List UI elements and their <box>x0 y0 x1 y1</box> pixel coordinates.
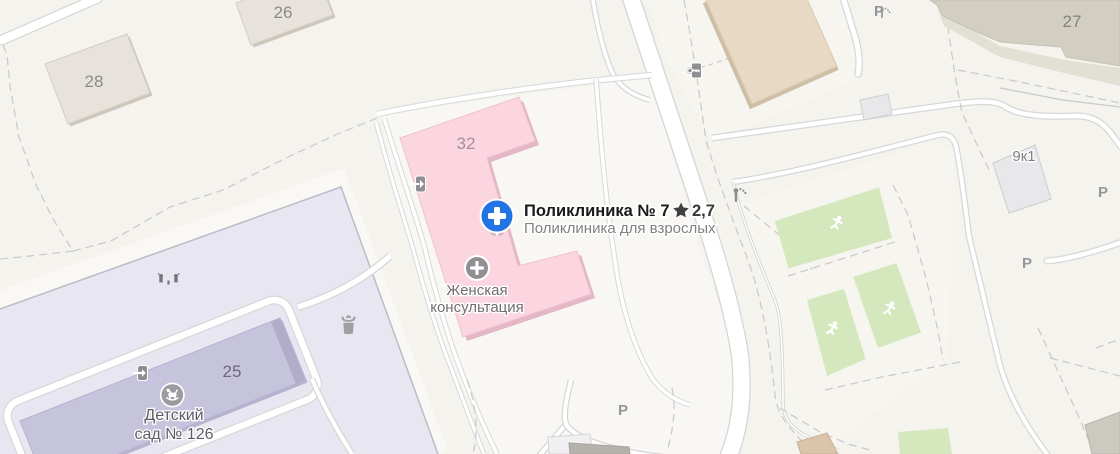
svg-text:Р: Р <box>1098 184 1108 201</box>
svg-text:консультация: консультация <box>430 299 524 316</box>
svg-text:Женская: Женская <box>446 282 507 299</box>
svg-text:Детский: Детский <box>144 407 203 424</box>
svg-text:P: P <box>618 402 628 419</box>
svg-text:27: 27 <box>1063 12 1082 31</box>
svg-text:P: P <box>1022 255 1032 272</box>
svg-text:26: 26 <box>274 3 293 22</box>
svg-text:32: 32 <box>457 134 476 153</box>
svg-text:9к1: 9к1 <box>1012 148 1035 165</box>
svg-text:Поликлиника для взрослых: Поликлиника для взрослых <box>524 220 716 237</box>
svg-text:Поликлиника № 7: Поликлиника № 7 <box>524 202 670 220</box>
svg-text:сад № 126: сад № 126 <box>135 426 214 443</box>
svg-text:28: 28 <box>85 72 104 91</box>
svg-text:2,7: 2,7 <box>692 202 715 220</box>
svg-text:25: 25 <box>223 362 242 381</box>
